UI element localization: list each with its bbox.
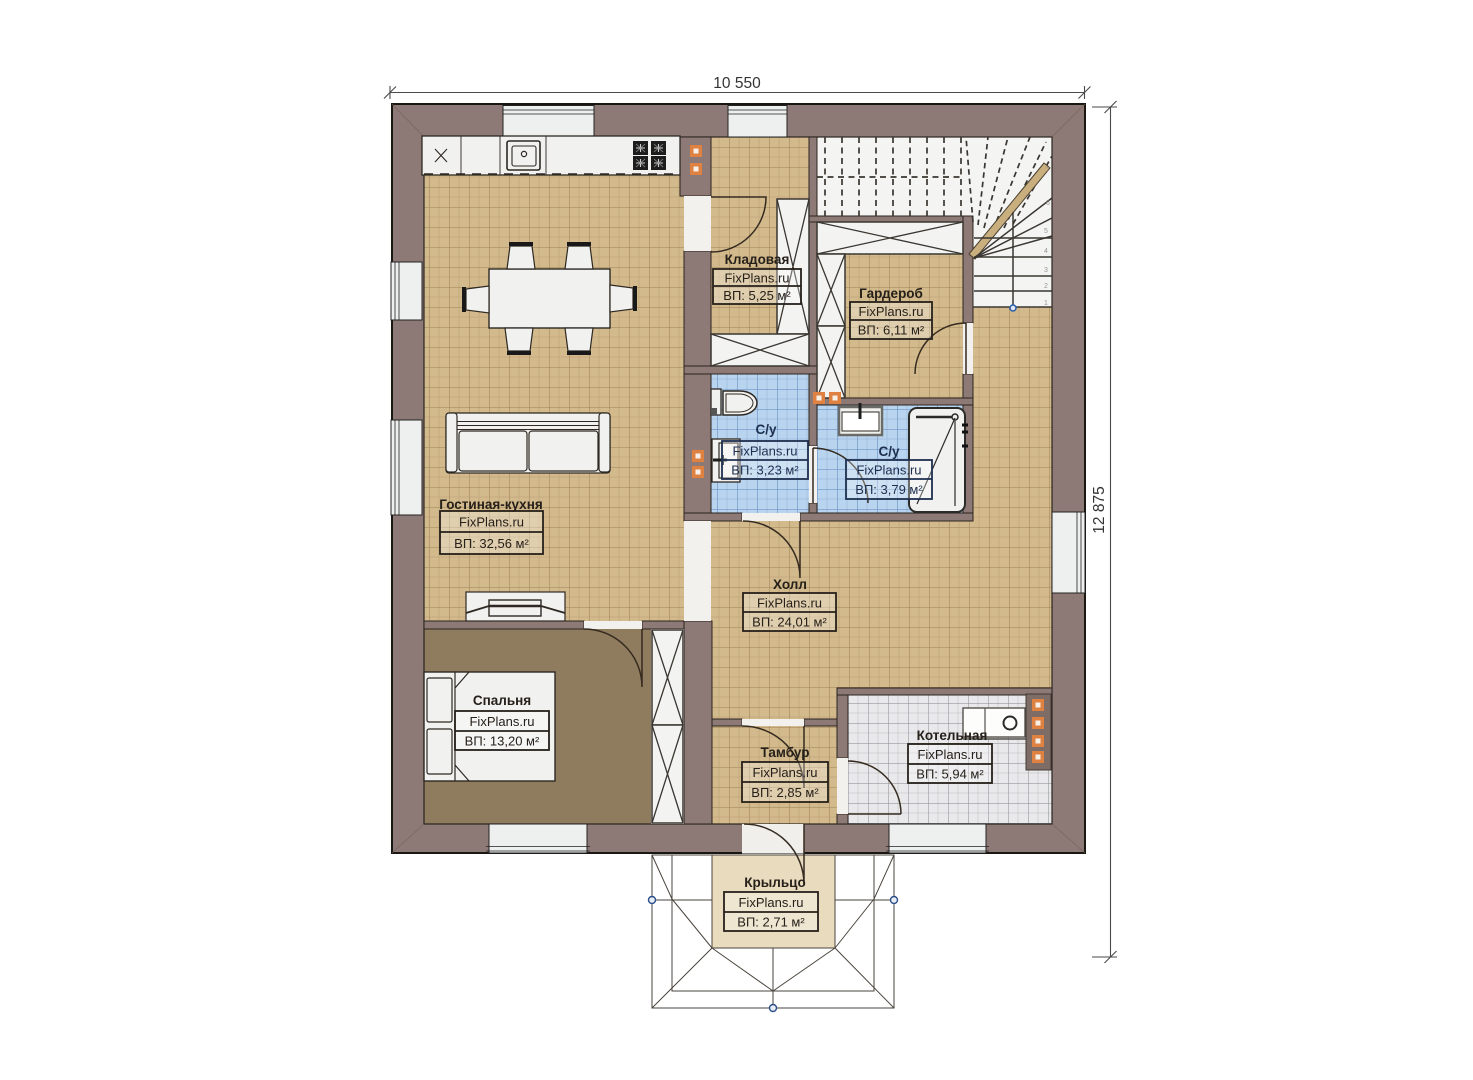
svg-text:4: 4 [1044, 248, 1048, 255]
svg-text:FixPlans.ru: FixPlans.ru [858, 304, 923, 319]
svg-text:ВП: 5,94 м²: ВП: 5,94 м² [916, 766, 984, 781]
svg-text:ВП: 32,56 м²: ВП: 32,56 м² [454, 536, 529, 551]
svg-text:FixPlans.ru: FixPlans.ru [738, 895, 803, 910]
svg-text:FixPlans.ru: FixPlans.ru [752, 765, 817, 780]
svg-text:ВП: 2,85 м²: ВП: 2,85 м² [751, 785, 819, 800]
svg-text:12 875: 12 875 [1091, 486, 1108, 533]
svg-text:5: 5 [1044, 228, 1048, 235]
svg-text:2: 2 [1044, 283, 1048, 290]
svg-text:Крыльцо: Крыльцо [744, 875, 805, 890]
svg-text:Тамбур: Тамбур [761, 745, 810, 760]
svg-text:FixPlans.ru: FixPlans.ru [724, 270, 789, 285]
svg-text:ВП: 24,01 м²: ВП: 24,01 м² [752, 614, 827, 629]
svg-text:ВП: 3,23 м²: ВП: 3,23 м² [731, 462, 799, 477]
svg-text:ВП: 5,25 м²: ВП: 5,25 м² [723, 288, 791, 303]
svg-text:С/у: С/у [878, 444, 900, 459]
svg-text:FixPlans.ru: FixPlans.ru [856, 462, 921, 477]
svg-text:ВП: 6,11 м²: ВП: 6,11 м² [858, 322, 925, 337]
svg-text:ВП: 13,20 м²: ВП: 13,20 м² [465, 733, 540, 748]
svg-text:Гостиная-кухня: Гостиная-кухня [439, 497, 542, 512]
svg-text:1: 1 [1044, 300, 1048, 307]
svg-text:Кладовая: Кладовая [725, 252, 790, 267]
svg-text:3: 3 [1044, 267, 1048, 274]
svg-text:FixPlans.ru: FixPlans.ru [917, 747, 982, 762]
svg-text:7: 7 [1046, 167, 1050, 174]
svg-text:FixPlans.ru: FixPlans.ru [469, 714, 534, 729]
svg-text:Спальня: Спальня [473, 693, 531, 708]
svg-text:10 550: 10 550 [713, 75, 761, 92]
svg-text:С/у: С/у [755, 422, 777, 437]
svg-text:FixPlans.ru: FixPlans.ru [459, 514, 524, 529]
svg-text:6: 6 [1046, 200, 1050, 207]
svg-text:FixPlans.ru: FixPlans.ru [757, 595, 822, 610]
svg-text:Котельная: Котельная [917, 728, 988, 743]
svg-text:Гардероб: Гардероб [859, 286, 923, 301]
svg-text:FixPlans.ru: FixPlans.ru [732, 443, 797, 458]
svg-text:Холл: Холл [773, 577, 807, 592]
svg-text:ВП: 3,79 м²: ВП: 3,79 м² [855, 482, 923, 497]
svg-text:ВП: 2,71 м²: ВП: 2,71 м² [737, 914, 805, 929]
